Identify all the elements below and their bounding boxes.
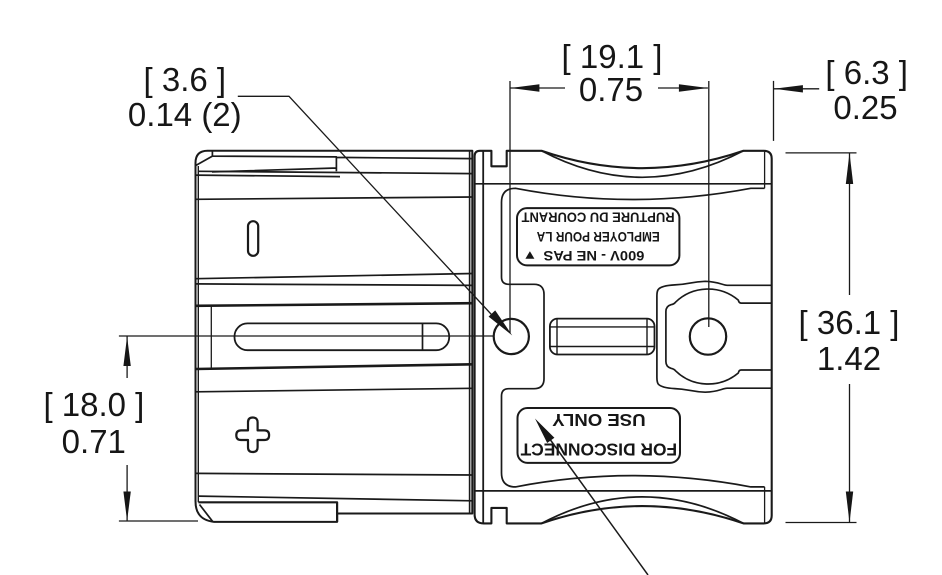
svg-text:EMPLOYER POUR LA: EMPLOYER POUR LA — [536, 229, 659, 244]
svg-text:[ 36.1 ]: [ 36.1 ] — [799, 304, 900, 341]
svg-text:[ 3.6 ]: [ 3.6 ] — [144, 61, 227, 98]
svg-text:0.75: 0.75 — [579, 71, 643, 108]
svg-text:0.14 (2): 0.14 (2) — [128, 96, 242, 133]
svg-text:600V - NE PAS: 600V - NE PAS — [543, 248, 644, 263]
svg-text:[ 19.1 ]: [ 19.1 ] — [562, 38, 663, 75]
svg-text:[ 6.3 ]: [ 6.3 ] — [825, 54, 908, 91]
svg-text:0.25: 0.25 — [833, 89, 897, 126]
svg-text:[ 18.0 ]: [ 18.0 ] — [43, 386, 144, 423]
svg-text:0.71: 0.71 — [62, 423, 126, 460]
svg-text:RUPTURE DU COURANT: RUPTURE DU COURANT — [521, 210, 675, 225]
svg-text:1.42: 1.42 — [817, 340, 881, 377]
svg-text:USE ONLY: USE ONLY — [552, 410, 646, 430]
svg-text:FOR DISCONNECT: FOR DISCONNECT — [520, 439, 677, 459]
